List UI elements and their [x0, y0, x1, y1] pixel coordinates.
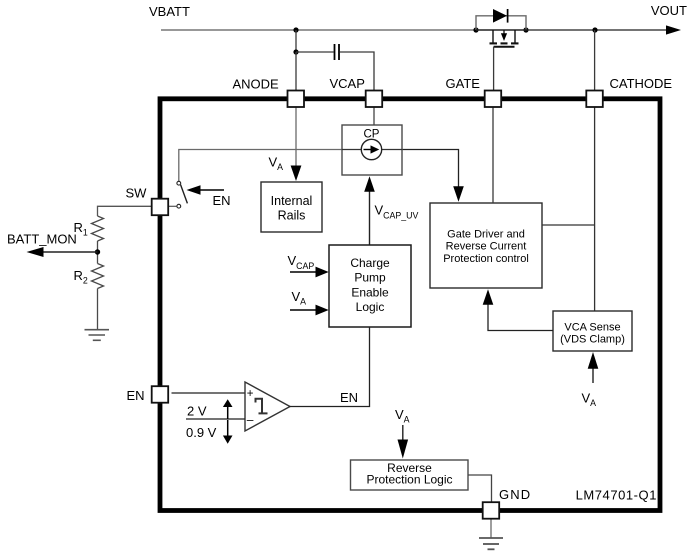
svg-text:Protection Logic: Protection Logic: [366, 472, 452, 486]
svg-text:Internal: Internal: [271, 194, 313, 208]
svg-text:Reverse Current: Reverse Current: [446, 241, 527, 253]
svg-text:Charge: Charge: [350, 256, 390, 270]
svg-text:VCA Sense: VCA Sense: [564, 322, 620, 334]
svg-text:2 V: 2 V: [187, 404, 207, 419]
svg-text:SW: SW: [126, 186, 148, 201]
svg-text:EN: EN: [127, 388, 145, 403]
svg-text:+: +: [247, 388, 254, 400]
svg-text:GND: GND: [499, 487, 531, 502]
svg-text:Logic: Logic: [356, 300, 385, 314]
svg-text:(VDS Clamp): (VDS Clamp): [560, 334, 625, 346]
svg-text:GATE: GATE: [446, 76, 481, 91]
svg-text:Protection control: Protection control: [443, 253, 529, 265]
svg-text:EN: EN: [340, 390, 358, 405]
svg-text:Gate Driver and: Gate Driver and: [447, 228, 525, 240]
svg-text:EN: EN: [213, 193, 231, 208]
svg-text:Enable: Enable: [351, 285, 389, 299]
svg-text:LM74701-Q1: LM74701-Q1: [576, 488, 657, 503]
svg-text:Pump: Pump: [354, 271, 386, 285]
svg-text:VOUT: VOUT: [651, 3, 687, 18]
svg-text:CATHODE: CATHODE: [610, 76, 673, 91]
svg-text:–: –: [247, 413, 254, 427]
svg-text:BATT_MON: BATT_MON: [7, 232, 77, 247]
svg-text:VCAP: VCAP: [330, 76, 365, 91]
svg-text:Rails: Rails: [278, 209, 306, 223]
svg-text:ANODE: ANODE: [233, 77, 280, 92]
svg-text:VBATT: VBATT: [149, 4, 190, 19]
svg-text:0.9 V: 0.9 V: [186, 425, 217, 440]
